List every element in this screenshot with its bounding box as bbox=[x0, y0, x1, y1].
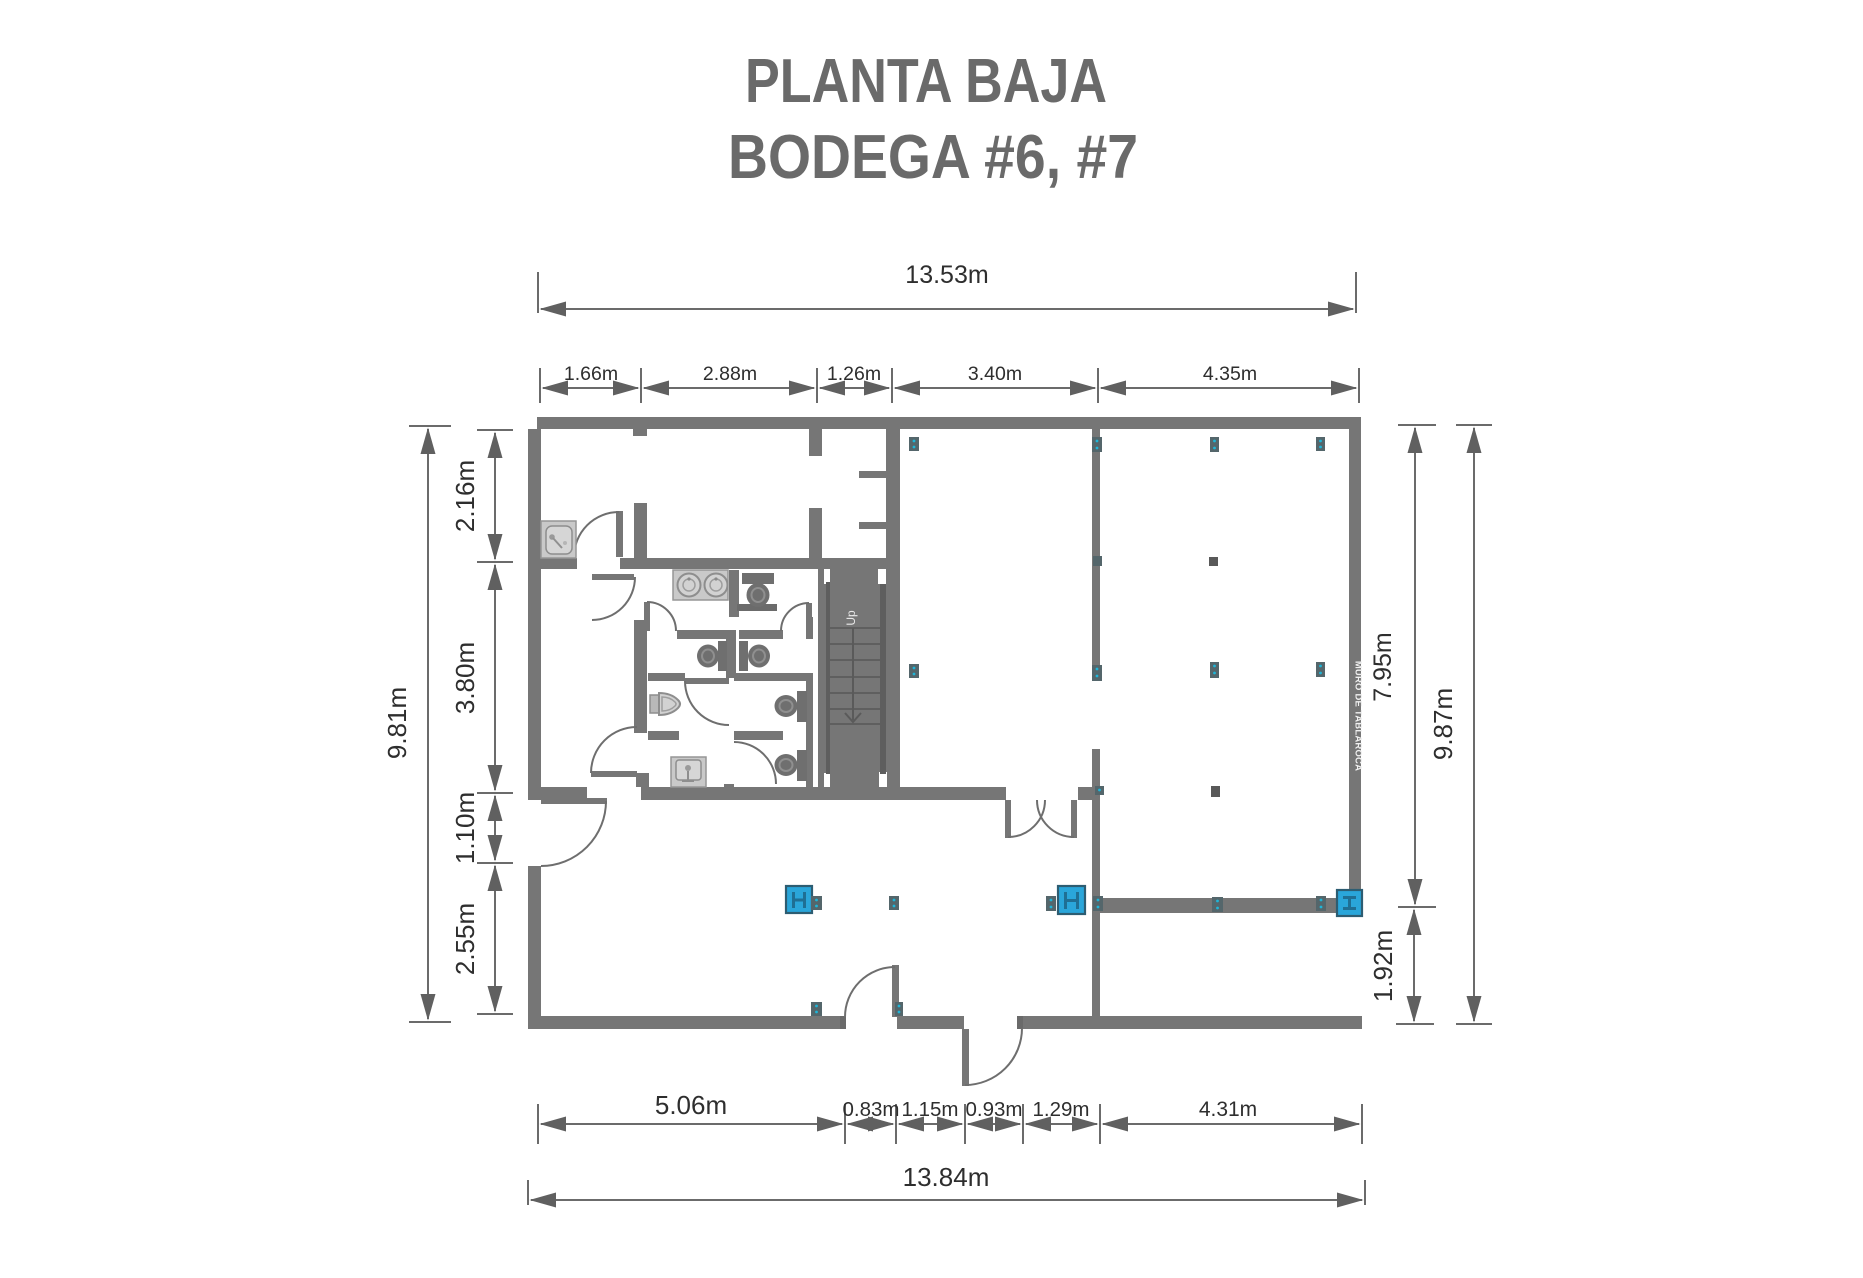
svg-text:0.93m: 0.93m bbox=[966, 1098, 1023, 1121]
svg-text:1.66m: 1.66m bbox=[564, 363, 618, 385]
svg-text:4.31m: 4.31m bbox=[1199, 1098, 1257, 1121]
svg-text:1.92m: 1.92m bbox=[1368, 930, 1398, 1002]
svg-text:1.10m: 1.10m bbox=[450, 792, 480, 864]
svg-text:3.80m: 3.80m bbox=[450, 642, 480, 714]
svg-text:2.55m: 2.55m bbox=[450, 903, 480, 975]
svg-text:5.06m: 5.06m bbox=[655, 1090, 727, 1120]
svg-text:9.81m: 9.81m bbox=[382, 687, 412, 759]
svg-text:1.15m: 1.15m bbox=[902, 1098, 959, 1121]
svg-text:2.16m: 2.16m bbox=[450, 460, 480, 532]
svg-text:1.29m: 1.29m bbox=[1033, 1098, 1090, 1121]
svg-text:1.26m: 1.26m bbox=[827, 363, 881, 385]
svg-text:4.35m: 4.35m bbox=[1203, 363, 1257, 385]
svg-text:13.53m: 13.53m bbox=[905, 261, 988, 289]
svg-text:0.83m: 0.83m bbox=[843, 1098, 900, 1121]
svg-text:3.40m: 3.40m bbox=[968, 363, 1022, 385]
svg-text:BODEGA #6, #7: BODEGA #6, #7 bbox=[728, 123, 1138, 192]
svg-text:9.87m: 9.87m bbox=[1428, 688, 1458, 760]
svg-text:MURO DE TABLAROCA: MURO DE TABLAROCA bbox=[1353, 661, 1364, 771]
svg-text:7.95m: 7.95m bbox=[1369, 632, 1397, 701]
svg-text:Up: Up bbox=[844, 610, 858, 626]
svg-text:13.84m: 13.84m bbox=[903, 1162, 990, 1192]
svg-text:PLANTA BAJA: PLANTA BAJA bbox=[745, 47, 1107, 116]
svg-text:2.88m: 2.88m bbox=[703, 363, 757, 385]
